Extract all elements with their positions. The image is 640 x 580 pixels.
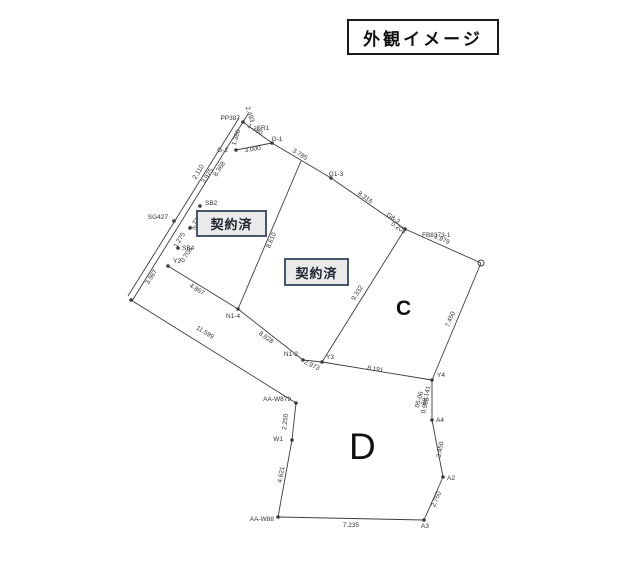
boundary-line	[272, 143, 331, 178]
measurement-label: 7.235	[343, 522, 360, 529]
measurement-label: 2.973	[303, 359, 321, 372]
measurement-label: G-2	[217, 147, 228, 154]
survey-point	[276, 515, 280, 519]
plot-d-label: D	[349, 428, 376, 465]
contracted-badge-plot1: 契約済	[196, 210, 267, 237]
measurement-label: 2.750	[430, 490, 443, 508]
measurement-label: 11.599	[195, 325, 215, 341]
measurement-label: SB2	[205, 200, 218, 207]
measurement-label: 4.867	[188, 283, 206, 298]
survey-point	[236, 307, 240, 311]
measurement-label: AA-W879	[263, 396, 291, 403]
measurement-label: 8.610	[265, 231, 278, 249]
measurement-label: G1-3	[329, 171, 344, 178]
measurement-label: 2.250	[281, 413, 290, 430]
survey-point	[290, 438, 294, 442]
measurement-label: Y2	[173, 258, 181, 265]
measurement-label: SG427	[148, 214, 169, 221]
measurement-label: 1.380	[231, 128, 243, 146]
survey-point	[441, 475, 445, 479]
measurement-label: N1-4	[226, 313, 240, 320]
plot-c-label: C	[396, 298, 411, 319]
survey-point	[241, 120, 245, 124]
survey-point	[172, 219, 176, 223]
measurement-label: 0.203	[390, 221, 408, 236]
boundary-line	[432, 263, 481, 380]
measurement-label: 3.967	[144, 268, 159, 286]
boundary-line	[322, 229, 405, 362]
measurement-label: PP387	[220, 115, 240, 122]
survey-point	[422, 518, 426, 522]
boundary-line	[278, 517, 424, 520]
measurement-label: AA-W88	[250, 516, 275, 523]
measurement-label: 3.450	[436, 441, 446, 459]
measurement-label: 8.191	[367, 365, 385, 375]
survey-point	[430, 378, 434, 382]
measurement-label: 8.316	[356, 190, 374, 205]
measurement-label: 3.000	[244, 145, 262, 155]
boundary-line	[292, 403, 296, 440]
measurement-label: N1-2	[284, 351, 298, 358]
measurement-label: G-1	[272, 136, 283, 143]
boundary-line	[131, 300, 296, 403]
boundary-line	[128, 118, 239, 296]
title-box: 外観イメージ	[347, 19, 499, 55]
survey-point	[294, 401, 298, 405]
land-survey-image: PP3872.493SR11.3801.380G-23.000G-13.785G…	[0, 0, 640, 580]
contracted-badge-plot2: 契約済	[284, 258, 349, 286]
survey-point	[166, 264, 170, 268]
measurement-label: 8.928	[257, 330, 275, 345]
page-title: 外観イメージ	[363, 25, 483, 50]
survey-point	[234, 148, 238, 152]
measurement-label: A4	[436, 417, 444, 424]
contracted-badge-label: 契約済	[295, 263, 337, 282]
measurement-label: A2	[447, 475, 455, 482]
survey-drawing: PP3872.493SR11.3801.380G-23.000G-13.785G…	[0, 0, 640, 580]
measurement-label: A3	[421, 523, 429, 530]
survey-point	[129, 298, 133, 302]
measurement-label: Y3	[326, 354, 334, 361]
measurement-label: 2.493	[244, 106, 256, 124]
survey-point	[198, 204, 202, 208]
measurement-label: Y4	[437, 372, 445, 379]
contracted-badge-label: 契約済	[210, 214, 252, 233]
survey-point	[430, 418, 434, 422]
boundary-line	[168, 266, 238, 309]
measurement-label: W1	[273, 436, 283, 443]
measurement-label: 9.332	[350, 284, 365, 302]
survey-point	[320, 360, 324, 364]
measurement-label: 8.368	[212, 160, 227, 178]
